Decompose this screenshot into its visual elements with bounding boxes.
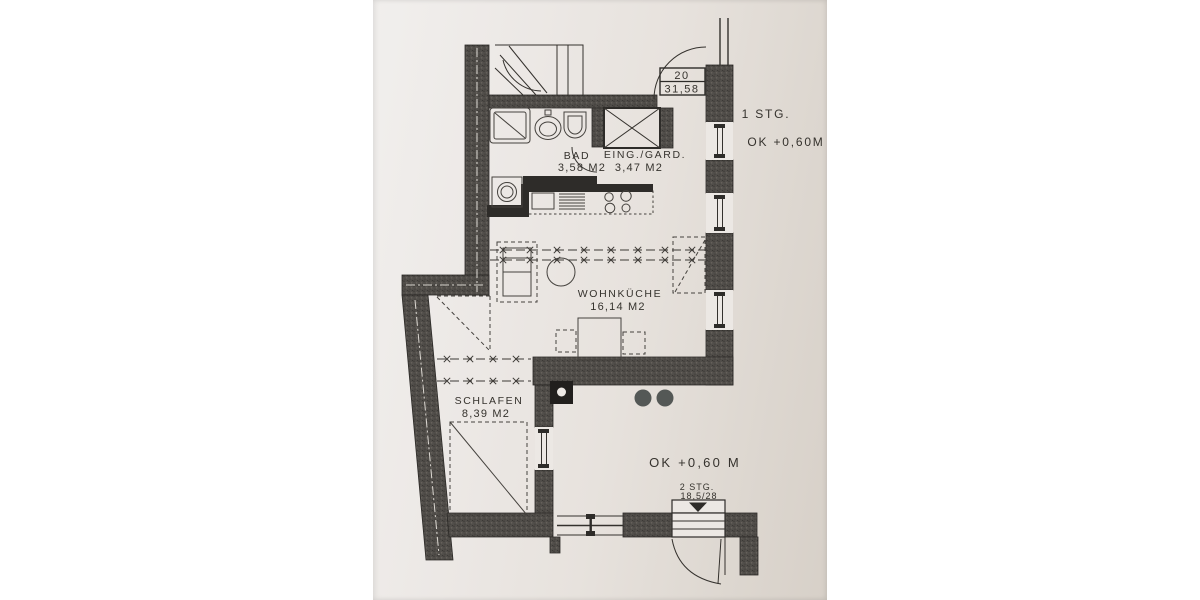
toilet — [564, 112, 586, 138]
wardrobe-box — [604, 108, 660, 148]
area-eingang: 3,47 M2 — [615, 162, 663, 174]
drainer — [559, 194, 585, 209]
note-stairs2-line2: 18,5/28 — [680, 491, 717, 501]
kitchen-counter — [529, 190, 653, 214]
note-level-upper: OK +0,60M — [747, 135, 824, 149]
shower — [490, 108, 530, 143]
unit-number: 20 — [674, 70, 689, 82]
label-schlafen: SCHLAFEN — [455, 395, 524, 407]
column-dots — [635, 390, 674, 407]
roof-slope-triangle — [437, 296, 490, 351]
side-furniture — [673, 237, 705, 293]
corner-post — [550, 381, 573, 404]
area-bad: 3,58 M2 — [558, 162, 606, 174]
area-wohnkueche: 16,14 M2 — [590, 301, 645, 313]
unit-area: 31,58 — [664, 84, 699, 96]
floorplan-drawing: 20 31,58 — [373, 0, 827, 600]
windows-right-wall — [706, 122, 733, 330]
kitchen — [487, 176, 653, 217]
page-background: 20 31,58 — [0, 0, 1200, 600]
round-table — [547, 258, 575, 286]
stove-burners — [605, 191, 631, 213]
washing-machine — [492, 177, 522, 207]
note-level-lower: OK +0,60 M — [649, 455, 741, 470]
bed — [450, 422, 527, 515]
annotations: 1 STG. OK +0,60M OK +0,60 M 2 STG. 18,5/… — [649, 107, 824, 501]
label-eingang: EING./GARD. — [604, 149, 686, 161]
floorplan-photo: 20 31,58 — [373, 0, 827, 600]
stairs-top — [495, 45, 583, 95]
note-floor: 1 STG. — [742, 107, 791, 121]
height-lines-bedroom — [437, 356, 531, 384]
bathroom-fixtures — [490, 108, 586, 143]
sink — [535, 110, 561, 140]
exterior-steps — [672, 500, 725, 575]
window-bottom — [557, 514, 623, 536]
shelf-unit — [497, 242, 537, 302]
unit-label-box: 20 31,58 — [660, 68, 705, 96]
area-schlafen: 8,39 M2 — [462, 408, 510, 420]
height-lines-living — [490, 247, 706, 263]
label-bad: BAD — [564, 150, 590, 162]
stairwell-wall-lines — [720, 18, 728, 65]
label-wohnkueche: WOHNKÜCHE — [578, 288, 662, 300]
window-bedroom — [535, 427, 553, 470]
terrace-door-arc — [672, 539, 721, 584]
dining-table-chairs — [556, 318, 645, 360]
